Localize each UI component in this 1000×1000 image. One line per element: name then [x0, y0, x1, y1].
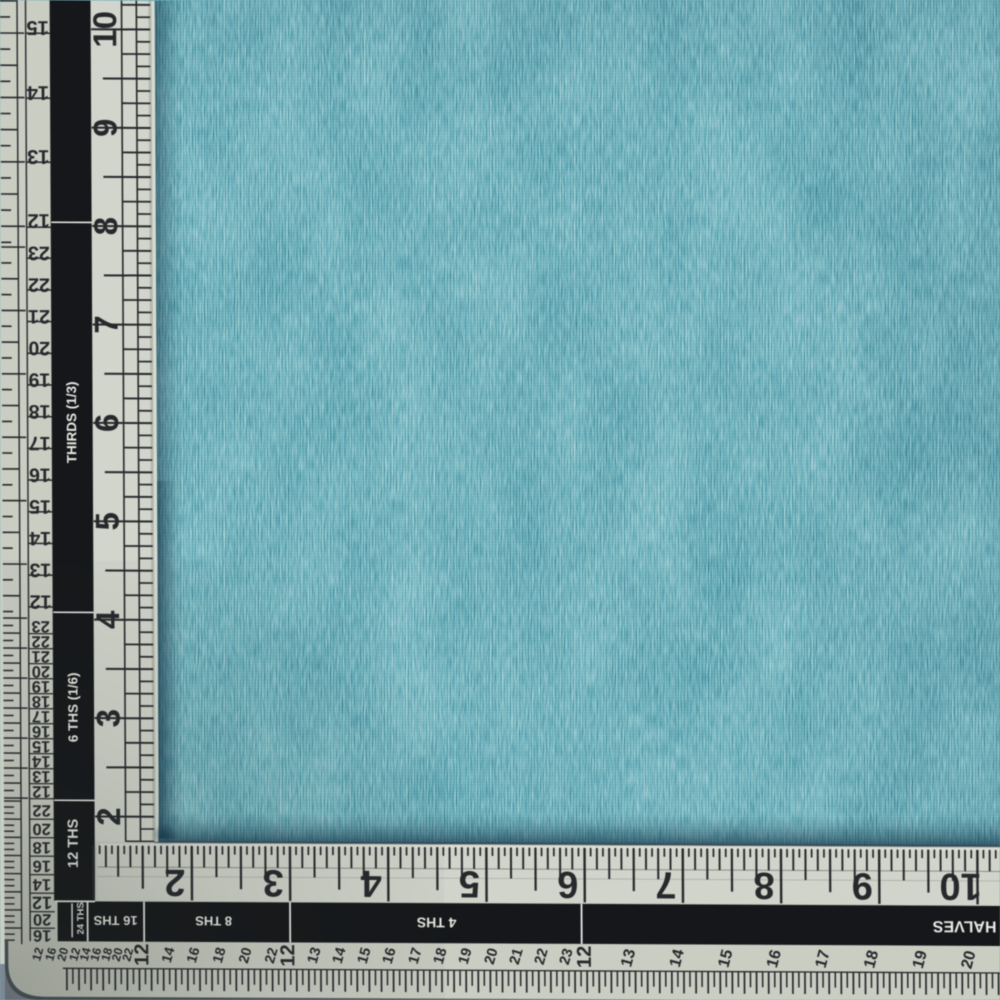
svg-text:23: 23 [28, 242, 50, 264]
svg-text:10: 10 [86, 11, 123, 48]
svg-text:5: 5 [459, 862, 480, 904]
svg-text:7: 7 [88, 315, 125, 334]
svg-text:9: 9 [852, 864, 873, 906]
svg-text:15: 15 [26, 16, 48, 38]
svg-text:5: 5 [89, 512, 126, 531]
svg-text:THIRDS (1/3): THIRDS (1/3) [64, 381, 79, 463]
svg-text:20: 20 [28, 337, 50, 359]
svg-text:18: 18 [29, 400, 51, 422]
svg-text:15: 15 [29, 495, 51, 517]
svg-text:21: 21 [28, 305, 50, 327]
svg-text:10: 10 [939, 865, 981, 907]
svg-text:9: 9 [87, 118, 124, 137]
svg-text:8: 8 [753, 864, 774, 906]
svg-text:7: 7 [655, 863, 676, 905]
svg-text:17: 17 [29, 432, 51, 454]
svg-text:19: 19 [28, 368, 50, 390]
svg-text:13: 13 [27, 145, 49, 167]
svg-text:HALVES: HALVES [932, 917, 996, 934]
svg-text:8: 8 [87, 217, 124, 236]
svg-text:22: 22 [28, 273, 50, 295]
svg-text:12: 12 [574, 946, 596, 968]
svg-text:6: 6 [88, 414, 125, 433]
svg-text:16: 16 [29, 464, 51, 486]
svg-text:6: 6 [557, 863, 578, 905]
svg-text:14: 14 [29, 527, 51, 549]
svg-text:14: 14 [26, 81, 49, 103]
